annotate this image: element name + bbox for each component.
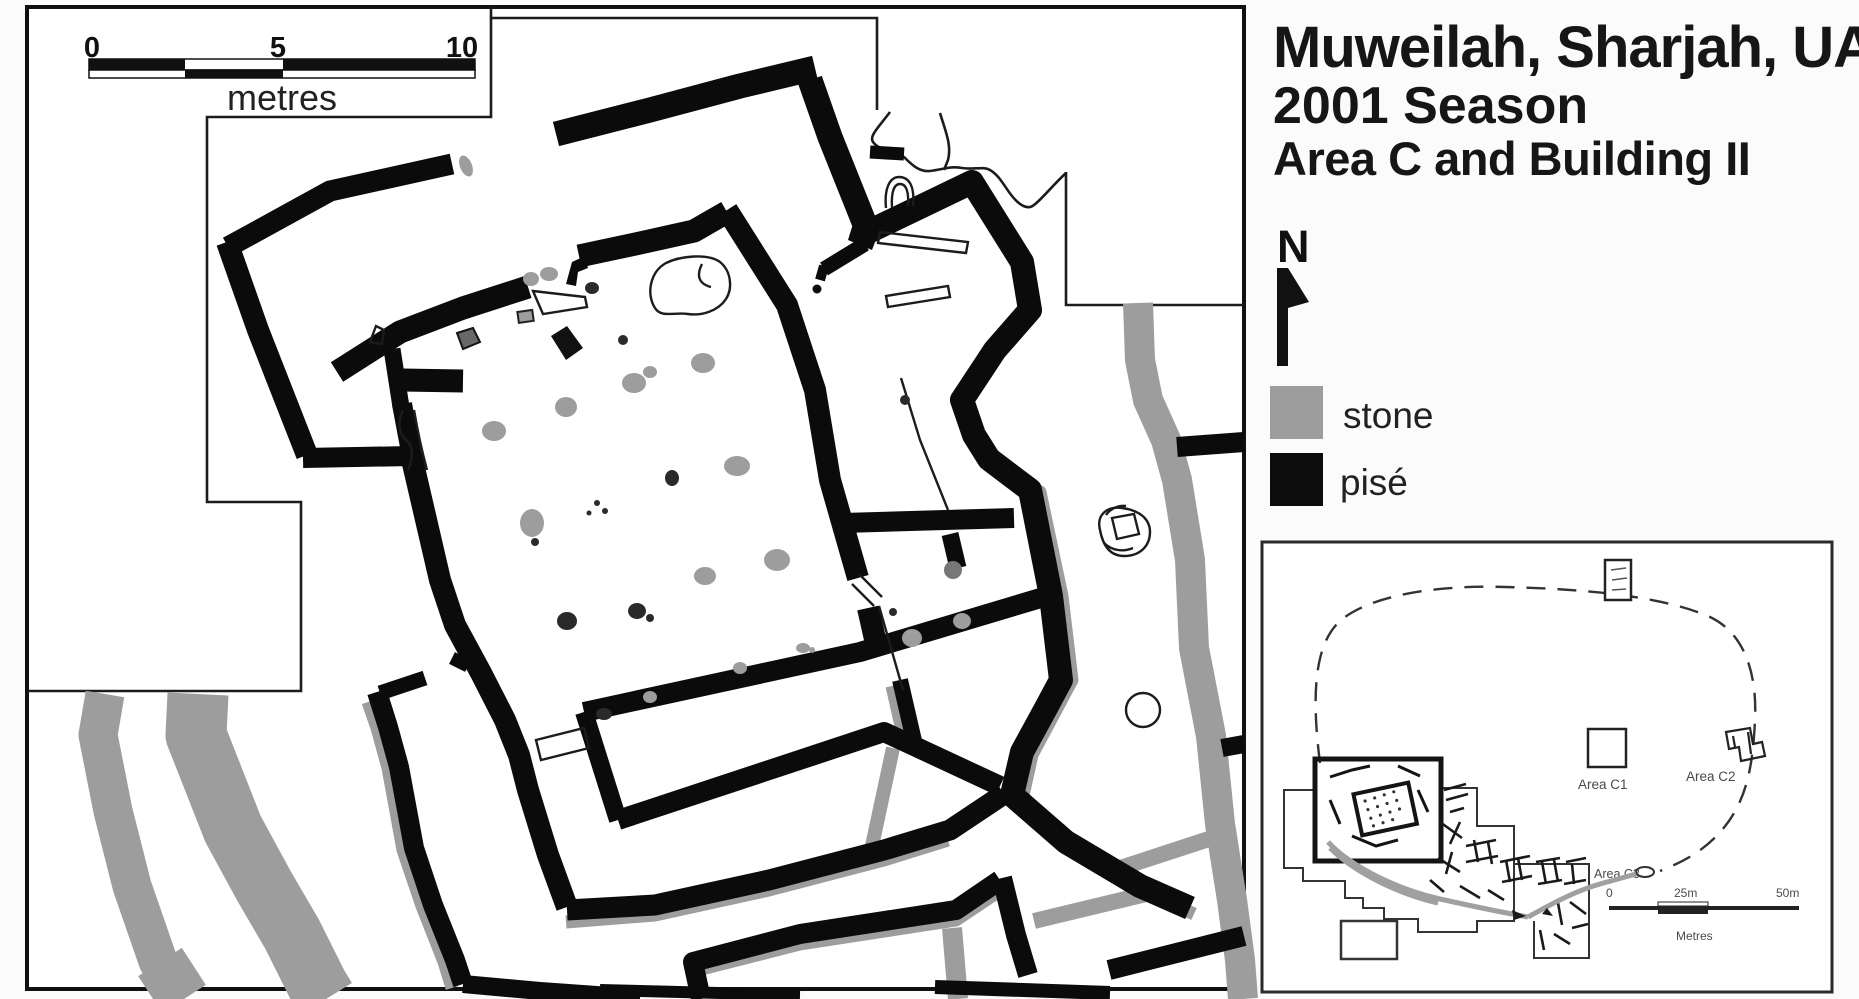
svg-text:0: 0 <box>1606 886 1613 900</box>
svg-text:N: N <box>1277 221 1310 272</box>
svg-text:Metres: Metres <box>1676 929 1713 943</box>
svg-text:pisé: pisé <box>1340 462 1408 503</box>
svg-text:25m: 25m <box>1674 886 1697 900</box>
svg-text:50m: 50m <box>1776 886 1799 900</box>
svg-text:Area C1: Area C1 <box>1578 777 1628 792</box>
svg-text:stone: stone <box>1343 395 1434 436</box>
svg-text:0: 0 <box>84 32 100 64</box>
svg-text:Area C2: Area C2 <box>1686 769 1736 784</box>
svg-text:metres: metres <box>227 77 337 118</box>
svg-text:5: 5 <box>270 32 286 64</box>
svg-text:10: 10 <box>446 32 478 64</box>
